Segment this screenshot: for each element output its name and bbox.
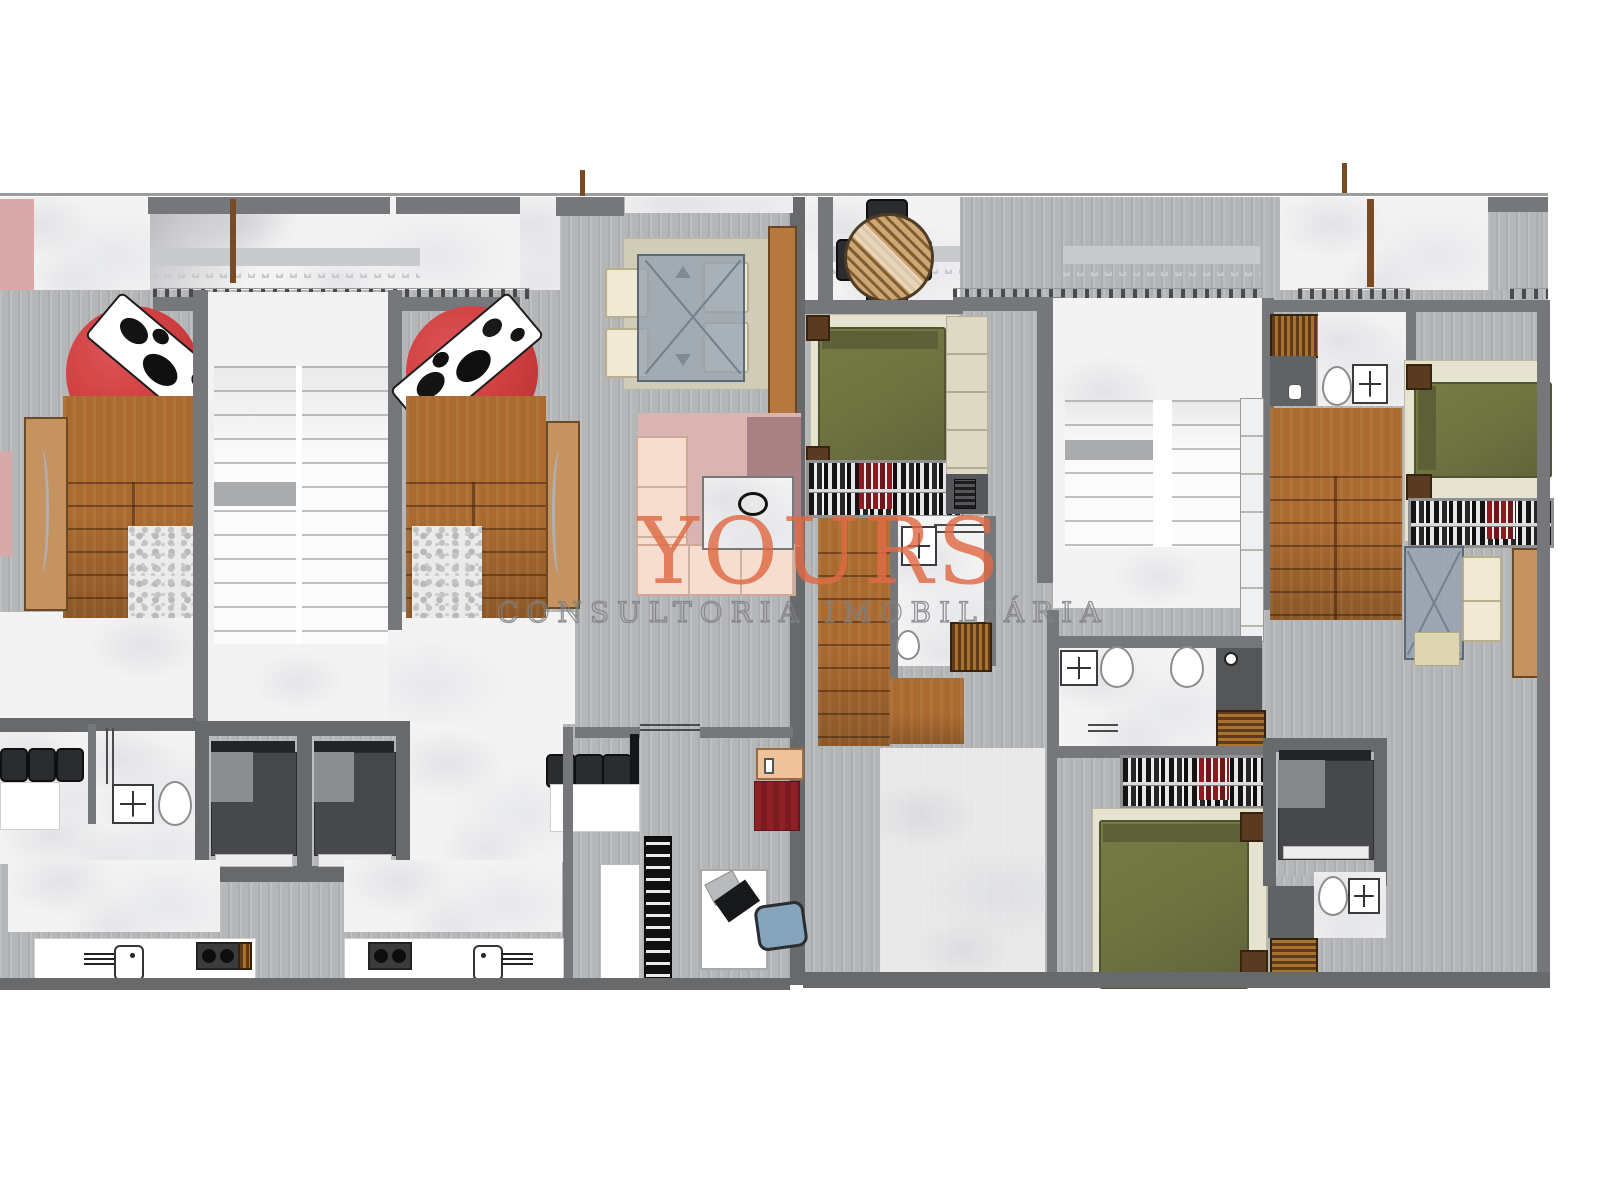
wall-bottom-left-building bbox=[0, 978, 790, 990]
bar-stool-a3 bbox=[56, 748, 84, 782]
nook-chair-2 bbox=[1462, 600, 1502, 642]
wall-study-a-core bbox=[193, 290, 208, 727]
terrace-left-shade-bar bbox=[150, 248, 420, 266]
wall-living-deskroom-2 bbox=[700, 727, 793, 738]
sideboard-living bbox=[768, 226, 797, 417]
timber-tick-top-1 bbox=[580, 170, 585, 196]
pebble-rug-a bbox=[128, 526, 202, 618]
bathroom-mb-dark-closet bbox=[1268, 886, 1314, 938]
appliance-dark-m-faucet bbox=[1224, 652, 1238, 666]
tv-cabinet-b bbox=[546, 421, 580, 609]
nook-chair-1 bbox=[1462, 556, 1502, 602]
top-wall-bar-1 bbox=[148, 197, 390, 214]
bar-screen-b bbox=[630, 734, 639, 784]
singlebed-wall-left bbox=[1263, 738, 1276, 886]
bathroom-mb-toilet bbox=[1318, 876, 1348, 916]
ladder-shelf bbox=[644, 836, 672, 988]
mini-fridge-handle bbox=[764, 758, 774, 774]
bathroom-m-draft-arrow-2 bbox=[1088, 730, 1118, 732]
closet-rack-r2 bbox=[1408, 498, 1554, 548]
core-m-sawtooth bbox=[1063, 264, 1260, 276]
stair-core-a-landing-band bbox=[214, 482, 296, 506]
door-leaf-deskroom-2 bbox=[640, 729, 700, 731]
stair-core-a-flight-2 bbox=[302, 366, 388, 644]
hatched-wall-row-right-2 bbox=[1510, 288, 1548, 299]
counter-white-deskroom bbox=[600, 864, 640, 986]
wall-corridor-m-left bbox=[1047, 610, 1059, 758]
bedroom-m2-bed bbox=[1099, 820, 1249, 989]
bathroom-r2-sink bbox=[1352, 364, 1388, 404]
kitchen-b-sink-drain bbox=[481, 953, 486, 958]
bedroom-r1-pillow-band bbox=[822, 331, 938, 349]
kitchen-b-backsplash bbox=[344, 860, 562, 932]
bedroom-r2-pillow-band bbox=[1418, 386, 1436, 470]
dining-table-glass bbox=[637, 254, 745, 382]
terrace-gap-white bbox=[520, 197, 560, 290]
kitchen-a-faucet bbox=[84, 953, 116, 965]
watermark-brand: YOURS bbox=[638, 506, 1004, 598]
bathroom-r2-toilet bbox=[1322, 366, 1352, 406]
bedroom-r2-nightstand-2 bbox=[1406, 474, 1432, 500]
wall-bottomleft-top bbox=[0, 718, 196, 732]
watermark-tagline: CONSULTORIA IMOBILIÁRIA bbox=[497, 596, 1108, 629]
timber-tick-top-2 bbox=[1342, 163, 1347, 193]
bedroom-r2-nightstand-1 bbox=[1406, 364, 1432, 390]
bed-1-pillow bbox=[215, 854, 293, 867]
wardrobe-column-m bbox=[946, 316, 988, 476]
closet-rack-r1-rail bbox=[809, 489, 961, 492]
bedblock-wall-middle bbox=[297, 721, 312, 882]
hall-marble-right-of-beds bbox=[410, 722, 563, 862]
bathroom-mb-faucet-icon bbox=[1354, 885, 1374, 907]
closet-rack-r2-rail bbox=[1411, 523, 1551, 526]
kitchen-a-vent bbox=[238, 942, 252, 970]
top-wall-bar-2 bbox=[396, 197, 520, 214]
wall-bedroom-m2-left bbox=[1047, 757, 1057, 985]
wall-core-m-left bbox=[1037, 298, 1053, 583]
single-bed-pillow bbox=[1283, 846, 1369, 859]
bedblock-wall-right bbox=[396, 721, 410, 882]
top-boundary-line bbox=[0, 193, 1548, 196]
bathroom-r-toilet bbox=[896, 630, 920, 660]
timber-post-right bbox=[1367, 199, 1374, 287]
bathroom-r-shoe-rack bbox=[950, 622, 992, 672]
bed-2-headboard bbox=[314, 741, 394, 752]
bedroom-r2-bed bbox=[1414, 382, 1552, 478]
kitchen-a-sink-drain bbox=[130, 953, 135, 958]
top-wall-bar-3 bbox=[556, 197, 624, 216]
right-unit-closet-item bbox=[1288, 384, 1302, 400]
bed-2-folded-sheet bbox=[314, 752, 354, 802]
floor-top-far-right bbox=[1488, 212, 1538, 290]
crimson-rug bbox=[754, 781, 800, 831]
pink-wall-strip-mid bbox=[0, 452, 12, 556]
wall-core-a-study-b bbox=[388, 290, 402, 630]
bathroom-a-faucet-icon bbox=[120, 791, 147, 816]
stairs-right-unit bbox=[1270, 408, 1402, 620]
stair-core-m-divider bbox=[1153, 400, 1172, 547]
terrace-round-table bbox=[844, 213, 934, 303]
hatched-wall-row-right-1 bbox=[1298, 288, 1410, 299]
closet-rack-m2-red-clothes bbox=[1199, 758, 1229, 800]
bed-1-headboard bbox=[211, 741, 295, 752]
bar-stool-b3 bbox=[602, 754, 632, 788]
kitchen-b-faucet bbox=[501, 953, 533, 965]
kitchen-b-sink bbox=[473, 945, 503, 981]
wall-below-terrace-right bbox=[805, 300, 963, 314]
bathroom-m-bidet bbox=[1170, 646, 1204, 688]
bedblock-wall-left bbox=[195, 721, 209, 882]
closet-rack-m2 bbox=[1120, 755, 1271, 809]
wall-right-unit-top bbox=[1263, 300, 1548, 312]
dining-table-arrow-down bbox=[675, 354, 691, 366]
bar-stool-b2 bbox=[574, 754, 604, 788]
stair-core-m-flight-1 bbox=[1065, 400, 1153, 547]
bar-stool-a2 bbox=[28, 748, 56, 782]
closet-rack-r2-red-clothes bbox=[1487, 501, 1515, 539]
closet-rack-m2-rail bbox=[1123, 782, 1268, 785]
hall-marble-bottom-left bbox=[0, 824, 220, 864]
tv-cabinet-b-handle bbox=[552, 451, 567, 575]
bathroom-m-sink bbox=[1060, 650, 1098, 686]
wall-right-edge bbox=[1537, 300, 1550, 986]
core-m-shade-bar bbox=[1063, 246, 1260, 264]
floor-plan-canvas: YOURS CONSULTORIA IMOBILIÁRIA bbox=[0, 0, 1600, 1200]
bathroom-m-faucet-icon bbox=[1067, 657, 1091, 679]
door-leaf-deskroom-1 bbox=[640, 724, 700, 726]
tv-cabinet-a-handle bbox=[34, 449, 49, 573]
living-top-strip bbox=[625, 197, 793, 213]
bathroom-a-sink bbox=[112, 784, 154, 824]
wall-deskroom-kitchen-b bbox=[563, 727, 573, 978]
singlebed-wall-right bbox=[1374, 738, 1387, 886]
bathroom-m-draft-arrow-1 bbox=[1088, 724, 1118, 726]
pebble-rug-b bbox=[412, 526, 482, 618]
bathroom-a-toilet bbox=[158, 781, 192, 826]
bar-stool-a1 bbox=[0, 748, 28, 782]
wall-top-far-right bbox=[1488, 197, 1548, 212]
bathroom-a-door-2 bbox=[112, 728, 114, 784]
right-unit-gray-closet bbox=[1270, 356, 1316, 406]
terrace-far-right bbox=[1280, 197, 1488, 290]
bathroom-mb-sink bbox=[1348, 878, 1380, 914]
dining-table-arrow-up bbox=[675, 266, 691, 278]
kitchen-column-m bbox=[1240, 398, 1264, 642]
kitchen-a-sink bbox=[114, 945, 144, 981]
bathroom-r2-faucet-icon bbox=[1359, 371, 1381, 396]
tv-cabinet-a bbox=[24, 417, 68, 611]
single-bed-headboard bbox=[1279, 750, 1371, 760]
stairs-r-mid-horizontal bbox=[890, 678, 964, 744]
timber-post-left bbox=[230, 199, 236, 283]
stairs-right-unit-divider bbox=[1334, 476, 1337, 620]
stair-core-m-landing-band bbox=[1065, 440, 1153, 460]
wall-bottom-right-building bbox=[803, 972, 1550, 988]
bar-table-a bbox=[0, 782, 60, 830]
terrace-left-sawtooth bbox=[150, 266, 420, 278]
hall-marble-right-mid bbox=[880, 748, 1045, 972]
terrace-round-table-band bbox=[844, 215, 933, 303]
terrace-right-wall-left bbox=[818, 197, 833, 310]
kitchen-b-cooktop bbox=[368, 942, 412, 970]
kitchen-a-cooktop bbox=[196, 942, 240, 970]
mini-fridge bbox=[756, 748, 804, 780]
office-chair bbox=[753, 900, 809, 953]
bathroom-a-door-1 bbox=[106, 728, 108, 784]
nook-side-table bbox=[1414, 632, 1460, 666]
kitchen-a-backsplash bbox=[8, 860, 220, 932]
right-unit-louver-cabinet bbox=[1270, 314, 1320, 358]
bathroom-m-toilet bbox=[1100, 646, 1134, 688]
bedroom-m2-pillow-band bbox=[1103, 824, 1241, 842]
appliance-dark-m bbox=[1216, 644, 1262, 710]
bathroom-a-wall bbox=[88, 724, 96, 824]
single-bed-folded-sheet bbox=[1278, 760, 1325, 808]
pink-wall-strip-top bbox=[0, 199, 34, 290]
bedroom-r1-bed bbox=[818, 327, 946, 469]
bed-1-folded-sheet bbox=[211, 752, 253, 802]
bathroom-m-wall-top bbox=[1047, 636, 1262, 648]
bedroom-r1-nightstand-1 bbox=[806, 315, 830, 341]
